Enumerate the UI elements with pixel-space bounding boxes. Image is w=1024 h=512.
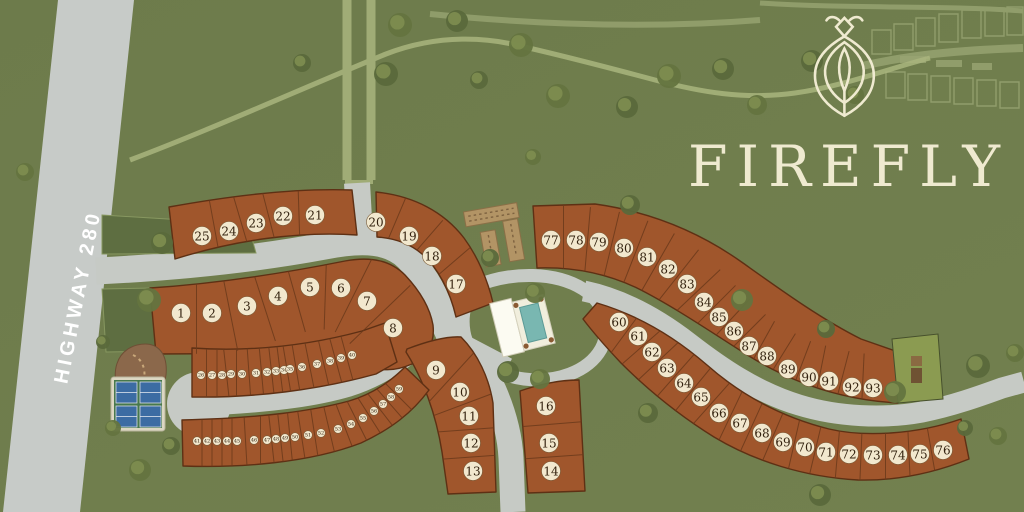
lot-number: 20 — [368, 216, 383, 230]
lot-badge-87: 87 — [740, 337, 759, 356]
lot-badge-67: 67 — [731, 414, 750, 433]
lot-number: 71 — [818, 446, 833, 460]
lot-badge-69: 69 — [774, 433, 793, 452]
lot-number: 73 — [865, 449, 880, 463]
lot-number: 27 — [209, 373, 215, 379]
tree — [105, 420, 121, 436]
tree — [546, 84, 570, 108]
lot-badge-70: 70 — [796, 438, 815, 457]
lot-number: 12 — [463, 437, 478, 451]
lot-badge-7: 7 — [358, 292, 377, 311]
lot-badge-13: 13 — [464, 462, 483, 481]
lot-badge-6: 6 — [332, 279, 351, 298]
lot-badge-84: 84 — [695, 293, 714, 312]
lot-badge-52: 52 — [317, 429, 326, 438]
lot-number: 91 — [821, 375, 836, 389]
tree — [712, 58, 734, 80]
lot-badge-83: 83 — [678, 275, 697, 294]
lot-badge-42: 42 — [203, 437, 212, 446]
site-plan-map: HIGHWAY 280 — [0, 0, 1024, 512]
lot-number: 75 — [912, 448, 927, 462]
lot-badge-40: 40 — [348, 351, 357, 360]
lot-badge-14: 14 — [542, 462, 561, 481]
lot-badge-8: 8 — [384, 319, 403, 338]
lot-badge-39: 39 — [337, 354, 346, 363]
lot-number: 13 — [465, 465, 480, 479]
lot-badge-48: 48 — [272, 435, 281, 444]
lot-number: 42 — [204, 439, 210, 445]
tree — [884, 381, 906, 403]
lot-number: 41 — [194, 439, 200, 445]
lot-number: 80 — [616, 242, 631, 256]
tree — [497, 361, 519, 383]
lot-number: 70 — [797, 441, 812, 455]
lot-number: 82 — [660, 263, 675, 277]
lot-number: 55 — [360, 416, 366, 422]
tree — [481, 249, 499, 267]
tree — [470, 71, 488, 89]
lot-number: 19 — [401, 230, 416, 244]
lot-badge-10: 10 — [451, 383, 470, 402]
lot-number: 9 — [432, 364, 440, 378]
lot-badge-91: 91 — [820, 372, 839, 391]
lot-badge-20: 20 — [367, 213, 386, 232]
lot-badge-72: 72 — [840, 445, 859, 464]
lot-number: 43 — [214, 439, 220, 445]
lot-number: 17 — [448, 278, 463, 292]
lot-number: 87 — [741, 340, 756, 354]
lot-number: 14 — [543, 465, 559, 479]
lot-number: 62 — [644, 346, 659, 360]
tree — [137, 288, 161, 312]
lot-badge-60: 60 — [610, 313, 629, 332]
lot-badge-30: 30 — [238, 370, 247, 379]
lot-number: 54 — [348, 422, 354, 428]
tree — [747, 95, 767, 115]
lot-number: 5 — [306, 281, 314, 295]
lot-number: 29 — [228, 372, 234, 378]
lot-number: 37 — [314, 362, 320, 368]
lot-badge-15: 15 — [540, 434, 559, 453]
lot-badge-77: 77 — [542, 231, 561, 250]
lot-badge-41: 41 — [193, 437, 202, 446]
lot-badge-26: 26 — [197, 371, 206, 380]
tree — [638, 403, 658, 423]
lot-badge-59: 59 — [395, 385, 404, 394]
tree — [446, 10, 468, 32]
lot-badge-86: 86 — [725, 322, 744, 341]
lot-badge-4: 4 — [269, 287, 288, 306]
lot-badge-36: 36 — [298, 363, 307, 372]
lot-number: 57 — [380, 402, 386, 408]
tree — [509, 33, 533, 57]
lot-number: 23 — [248, 217, 263, 231]
lot-number: 85 — [711, 311, 726, 325]
lot-number: 88 — [759, 350, 774, 364]
lot-badge-46: 46 — [250, 436, 259, 445]
lot-badge-53: 53 — [334, 425, 343, 434]
lot-badge-9: 9 — [427, 361, 446, 380]
lot-number: 24 — [221, 225, 237, 239]
lot-number: 48 — [273, 437, 279, 443]
lot-number: 93 — [865, 382, 880, 396]
lot-badge-73: 73 — [864, 446, 883, 465]
tree — [966, 354, 990, 378]
tree — [616, 96, 638, 118]
lot-badge-90: 90 — [800, 368, 819, 387]
lot-badge-54: 54 — [347, 420, 356, 429]
tree — [1006, 344, 1024, 362]
lot-number: 46 — [251, 438, 257, 444]
lot-badge-74: 74 — [889, 446, 908, 465]
lot-number: 15 — [541, 437, 556, 451]
lot-number: 21 — [307, 209, 322, 223]
tree — [957, 420, 973, 436]
lot-badge-31: 31 — [252, 369, 261, 378]
lot-number: 58 — [388, 395, 394, 401]
lot-badge-24: 24 — [220, 222, 239, 241]
lot-badge-37: 37 — [313, 360, 322, 369]
lot-number: 44 — [224, 439, 230, 445]
lot-number: 8 — [389, 322, 397, 336]
lot-badge-51: 51 — [304, 431, 313, 440]
lot-number: 3 — [243, 300, 251, 314]
lot-number: 61 — [630, 330, 645, 344]
lot-number: 86 — [726, 325, 741, 339]
lot-badge-44: 44 — [223, 437, 232, 446]
logo-text: FIREFLY — [688, 134, 1009, 200]
tree — [817, 320, 835, 338]
lot-badge-12: 12 — [462, 434, 481, 453]
lot-badge-19: 19 — [400, 227, 419, 246]
lot-number: 36 — [299, 365, 305, 371]
lot-number: 39 — [338, 356, 344, 362]
lot-number: 25 — [194, 230, 209, 244]
lot-badge-18: 18 — [423, 247, 442, 266]
lot-badge-45: 45 — [233, 437, 242, 446]
lot-number: 72 — [841, 448, 856, 462]
lot-number: 4 — [274, 290, 282, 304]
lot-badge-1: 1 — [172, 304, 191, 323]
lot-badge-71: 71 — [817, 443, 836, 462]
lot-badge-57: 57 — [379, 400, 388, 409]
lot-number: 47 — [264, 438, 270, 444]
lot-number: 35 — [287, 367, 293, 373]
lot-badge-75: 75 — [911, 445, 930, 464]
lot-number: 32 — [264, 370, 270, 376]
lot-badge-79: 79 — [590, 233, 609, 252]
lot-number: 51 — [305, 433, 311, 439]
tree — [620, 195, 640, 215]
tree — [989, 427, 1007, 445]
lot-badge-80: 80 — [615, 239, 634, 258]
lot-number: 60 — [611, 316, 626, 330]
lot-badge-62: 62 — [643, 343, 662, 362]
lot-number: 64 — [676, 377, 692, 391]
lot-number: 84 — [696, 296, 712, 310]
barn-building — [911, 356, 922, 366]
lot-badge-43: 43 — [213, 437, 222, 446]
lot-number: 22 — [275, 210, 290, 224]
lot-badge-82: 82 — [659, 260, 678, 279]
lot-badge-55: 55 — [359, 414, 368, 423]
lot-badge-56: 56 — [370, 407, 379, 416]
lot-badge-38: 38 — [326, 357, 335, 366]
lot-badge-28: 28 — [218, 371, 227, 380]
lot-badge-93: 93 — [864, 379, 883, 398]
lot-badge-64: 64 — [675, 374, 694, 393]
lot-badge-88: 88 — [758, 347, 777, 366]
lot-number: 6 — [337, 282, 345, 296]
lot-number: 33 — [273, 369, 279, 375]
lot-badge-50: 50 — [291, 433, 300, 442]
lot-badge-66: 66 — [710, 404, 729, 423]
lot-number: 53 — [335, 427, 341, 433]
tree — [151, 232, 173, 254]
lot-number: 65 — [693, 391, 708, 405]
lot-badge-25: 25 — [193, 227, 212, 246]
tree — [374, 62, 398, 86]
tree — [16, 163, 34, 181]
tree — [129, 459, 151, 481]
lot-badge-32: 32 — [263, 368, 272, 377]
lot-badge-81: 81 — [638, 248, 657, 267]
lot-number: 18 — [424, 250, 439, 264]
lot-badge-76: 76 — [934, 441, 953, 460]
lot-number: 76 — [935, 444, 950, 458]
lot-badge-22: 22 — [274, 207, 293, 226]
lot-badge-68: 68 — [753, 424, 772, 443]
lot-badge-78: 78 — [567, 231, 586, 250]
tree — [525, 149, 541, 165]
lot-badge-11: 11 — [460, 407, 479, 426]
lot-number: 68 — [754, 427, 769, 441]
lot-number: 31 — [253, 371, 259, 377]
lot-number: 74 — [890, 449, 906, 463]
lot-number: 78 — [568, 234, 583, 248]
tree — [525, 283, 545, 303]
lot-number: 30 — [239, 372, 245, 378]
lot-number: 79 — [591, 236, 606, 250]
lot-number: 52 — [318, 431, 324, 437]
road-ghost-stub — [357, 183, 360, 237]
tree — [731, 289, 753, 311]
lot-badge-35: 35 — [286, 365, 295, 374]
lot-badge-33: 33 — [272, 367, 281, 376]
tree — [96, 335, 110, 349]
tree — [530, 369, 550, 389]
lot-number: 7 — [363, 295, 371, 309]
lot-badge-61: 61 — [629, 327, 648, 346]
tree — [388, 13, 412, 37]
lot-number: 67 — [732, 417, 747, 431]
lot-number: 59 — [396, 387, 402, 393]
lot-number: 16 — [538, 400, 553, 414]
lot-number: 45 — [234, 439, 240, 445]
lot-badge-2: 2 — [203, 304, 222, 323]
lot-number: 69 — [775, 436, 790, 450]
lot-number: 77 — [543, 234, 558, 248]
lot-badge-58: 58 — [387, 393, 396, 402]
lot-badge-17: 17 — [447, 275, 466, 294]
tree — [293, 54, 311, 72]
lot-badge-3: 3 — [238, 297, 257, 316]
lot-number: 92 — [844, 381, 859, 395]
lot-number: 83 — [679, 278, 694, 292]
lot-number: 10 — [452, 386, 467, 400]
lot-number: 38 — [327, 359, 333, 365]
lot-number: 66 — [711, 407, 726, 421]
lot-number: 63 — [659, 362, 674, 376]
lot-badge-65: 65 — [692, 388, 711, 407]
lot-badge-89: 89 — [779, 360, 798, 379]
lot-badge-49: 49 — [281, 434, 290, 443]
lot-number: 90 — [801, 371, 816, 385]
lot-number: 49 — [282, 436, 288, 442]
lot-number: 1 — [177, 307, 185, 321]
lot-badge-5: 5 — [301, 278, 320, 297]
lot-badge-29: 29 — [227, 370, 236, 379]
lot-badge-21: 21 — [306, 206, 325, 225]
tree — [162, 437, 180, 455]
lot-badge-27: 27 — [208, 371, 217, 380]
lot-number: 26 — [198, 373, 204, 379]
barn-building — [911, 368, 922, 383]
lot-number: 50 — [292, 435, 298, 441]
lot-number: 11 — [461, 410, 476, 424]
lot-number: 56 — [371, 409, 377, 415]
lot-number: 40 — [349, 353, 355, 359]
lot-badge-23: 23 — [247, 214, 266, 233]
lot-number: 89 — [780, 363, 795, 377]
lot-number: 81 — [639, 251, 654, 265]
lot-number: 28 — [219, 373, 225, 379]
tree — [657, 64, 681, 88]
lot-badge-63: 63 — [658, 359, 677, 378]
lot-number: 2 — [208, 307, 216, 321]
tree — [809, 484, 831, 506]
lot-badge-16: 16 — [537, 397, 556, 416]
lot-badge-92: 92 — [843, 378, 862, 397]
lot-badge-47: 47 — [263, 436, 272, 445]
